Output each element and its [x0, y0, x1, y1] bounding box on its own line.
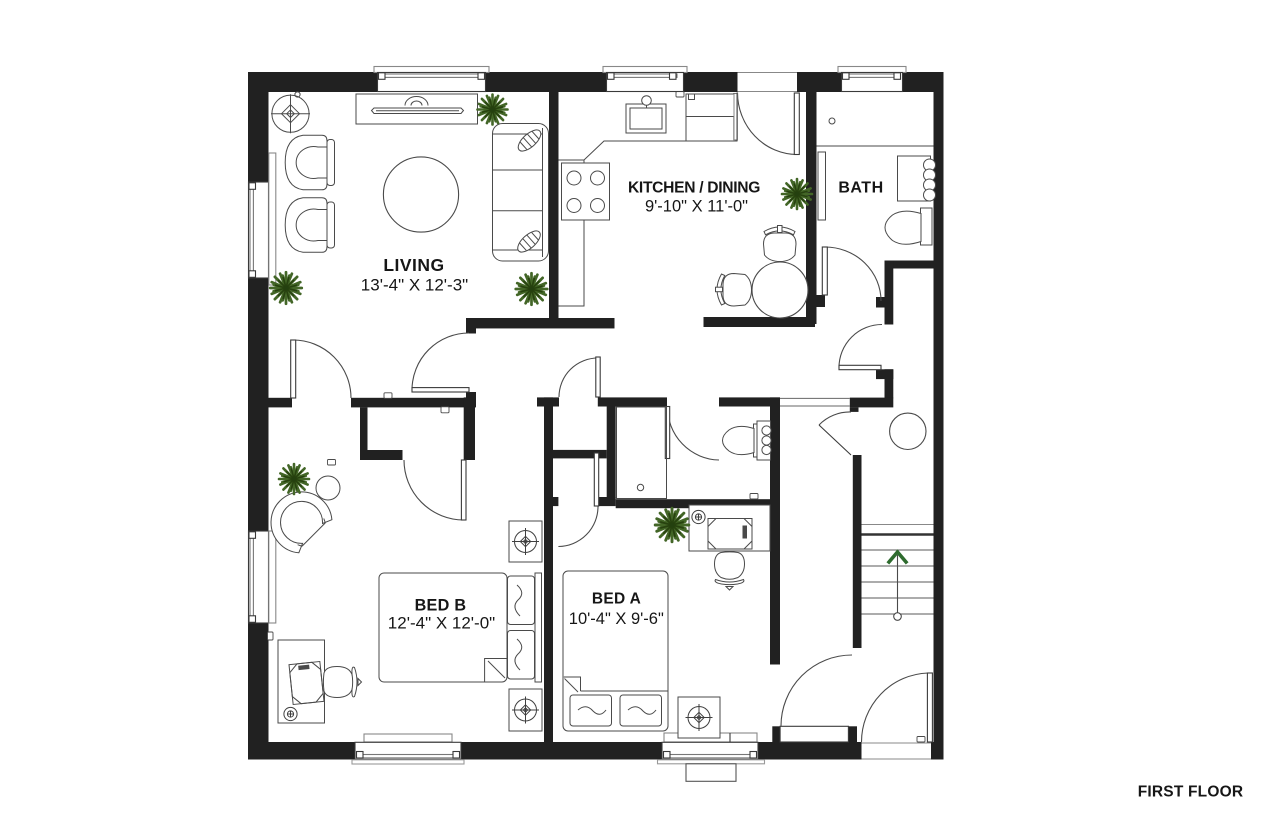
svg-text:FIRST FLOOR: FIRST FLOOR	[1138, 784, 1244, 801]
svg-text:12'-4" X 12'-0": 12'-4" X 12'-0"	[388, 614, 495, 633]
svg-text:BED B: BED B	[415, 597, 467, 615]
svg-text:LIVING: LIVING	[383, 255, 444, 275]
svg-text:13'-4" X 12'-3": 13'-4" X 12'-3"	[361, 276, 468, 295]
svg-text:10'-4" X 9'-6": 10'-4" X 9'-6"	[569, 610, 664, 628]
svg-text:KITCHEN / DINING: KITCHEN / DINING	[628, 180, 760, 197]
svg-text:9'-10" X 11'-0": 9'-10" X 11'-0"	[645, 198, 748, 216]
svg-text:BED A: BED A	[592, 591, 641, 608]
svg-text:BATH: BATH	[838, 180, 883, 197]
